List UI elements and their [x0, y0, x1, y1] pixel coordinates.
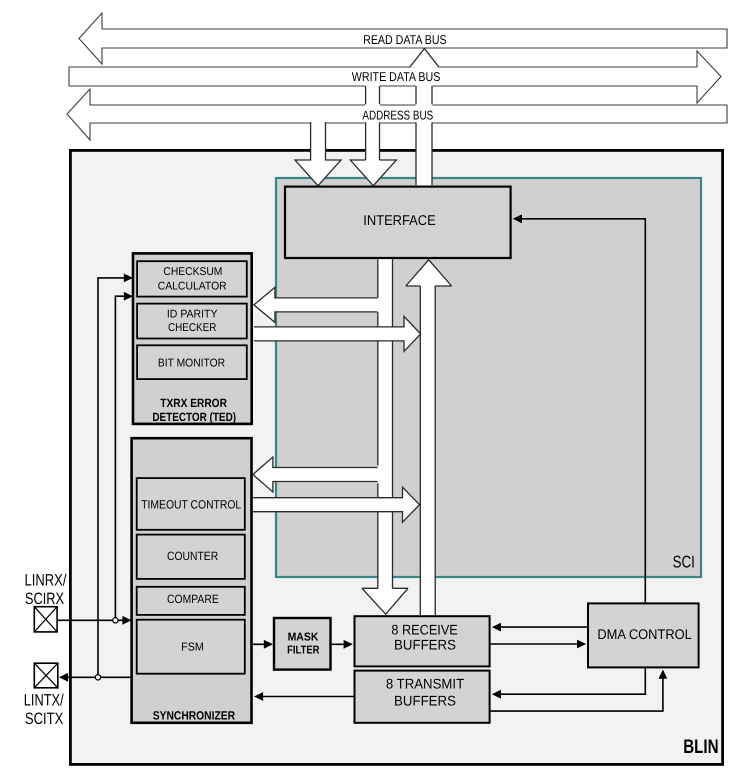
svg-text:BUFFERS: BUFFERS	[394, 636, 456, 652]
svg-text:8 RECEIVE: 8 RECEIVE	[391, 622, 457, 638]
svg-text:TIMEOUT CONTROL: TIMEOUT CONTROL	[141, 498, 241, 512]
svg-text:BLIN: BLIN	[683, 736, 718, 758]
svg-text:SCI: SCI	[673, 553, 695, 572]
svg-text:8 TRANSMIT: 8 TRANSMIT	[386, 675, 465, 691]
svg-text:LINRX/: LINRX/	[25, 572, 67, 590]
svg-text:FSM: FSM	[181, 642, 204, 654]
svg-text:LINTX/: LINTX/	[24, 691, 64, 709]
svg-text:CHECKER: CHECKER	[168, 322, 217, 334]
svg-text:DMA CONTROL: DMA CONTROL	[597, 626, 692, 642]
svg-text:TXRX ERROR: TXRX ERROR	[160, 396, 227, 410]
svg-text:SCIRX: SCIRX	[25, 590, 64, 608]
svg-text:CHECKSUM: CHECKSUM	[163, 266, 222, 278]
svg-text:DETECTOR (TED): DETECTOR (TED)	[152, 410, 236, 424]
svg-text:READ DATA BUS: READ DATA BUS	[363, 32, 447, 47]
svg-text:COMPARE: COMPARE	[167, 592, 219, 606]
svg-text:BIT MONITOR: BIT MONITOR	[158, 358, 225, 370]
svg-text:MASK: MASK	[288, 632, 319, 644]
svg-text:FILTER: FILTER	[287, 645, 320, 657]
svg-text:SCITX: SCITX	[25, 710, 63, 728]
svg-text:CALCULATOR: CALCULATOR	[158, 280, 227, 292]
svg-text:BUFFERS: BUFFERS	[394, 693, 456, 709]
svg-text:WRITE DATA BUS: WRITE DATA BUS	[352, 69, 441, 84]
svg-text:ADDRESS BUS: ADDRESS BUS	[362, 108, 433, 123]
svg-text:ID PARITY: ID PARITY	[167, 308, 218, 320]
svg-text:SYNCHRONIZER: SYNCHRONIZER	[153, 708, 235, 722]
svg-text:COUNTER: COUNTER	[167, 549, 218, 563]
svg-text:INTERFACE: INTERFACE	[363, 212, 435, 228]
